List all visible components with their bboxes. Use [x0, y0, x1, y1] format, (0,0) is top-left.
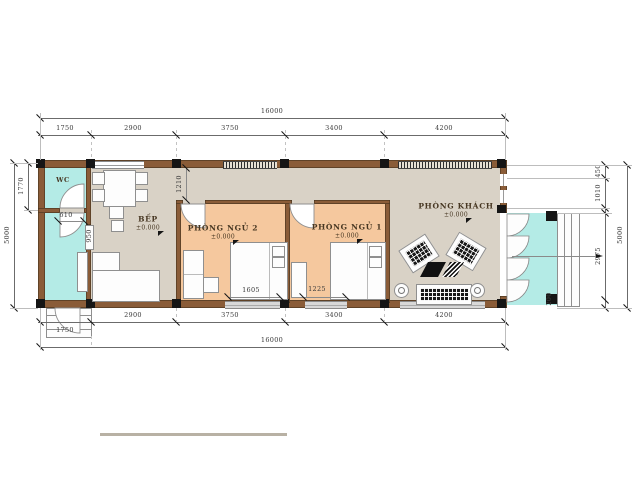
extension-line — [505, 308, 506, 350]
dim-top-seg4: 3400 — [325, 124, 343, 132]
accordion-door-panel — [507, 258, 529, 280]
dim-right-overall: 5000 — [616, 226, 624, 244]
floor-plan-canvas: WC BẾP ±0.000 PHÒNG NGỦ 2 ±0.000 PHÒNG N… — [0, 0, 640, 480]
dimension-line — [303, 297, 346, 298]
dimension-line — [38, 322, 507, 323]
dim-bottom-seg5: 4200 — [435, 311, 453, 319]
grid-line — [176, 130, 177, 160]
wc-door-arc — [60, 184, 84, 208]
dim-top-seg2: 2900 — [124, 124, 142, 132]
extension-line — [10, 163, 38, 164]
bedroom1-elevation: ±0.000 — [335, 233, 359, 240]
sheet-divider-line — [100, 433, 287, 436]
extension-line — [557, 308, 632, 309]
extension-line — [10, 308, 38, 309]
dim-bottom-seg4: 3400 — [325, 311, 343, 319]
dim-bottom-total: 16000 — [261, 336, 283, 344]
dim-left-wc: 1770 — [17, 177, 25, 195]
bedroom2-label: PHÒNG NGỦ 2 — [188, 224, 258, 233]
dim-left-overall: 5000 — [3, 226, 11, 244]
grid-line — [91, 130, 92, 160]
extension-line — [24, 210, 38, 211]
grid-line — [91, 336, 92, 348]
kitchen-elevation: ±0.000 — [136, 225, 160, 232]
dim-right-seg2: 1010 — [594, 184, 602, 202]
dimension-line — [28, 163, 29, 210]
extension-line — [507, 208, 610, 209]
grid-line — [285, 130, 286, 160]
dim-wc-door: 610 — [59, 211, 72, 219]
accordion-door-panel — [507, 236, 529, 258]
bedroom1-level-flag — [357, 239, 363, 244]
dim-right-porch-edge: 200 — [545, 292, 553, 305]
dim-top-seg5: 4200 — [435, 124, 453, 132]
grid-line — [285, 308, 286, 322]
kitchen-level-flag — [158, 231, 164, 236]
dimension-line — [228, 297, 280, 298]
dim-bottom-seg2: 2900 — [124, 311, 142, 319]
living-level-flag — [466, 218, 472, 223]
dim-top-seg3: 3750 — [221, 124, 239, 132]
extension-line — [505, 113, 506, 160]
grid-line — [384, 130, 385, 160]
dim-pass-opening: 950 — [85, 229, 93, 242]
dim-top-seg1: 1750 — [56, 124, 74, 132]
dim-right-seg1: 450 — [594, 164, 602, 177]
bedroom1-label: PHÒNG NGỦ 1 — [312, 223, 382, 232]
dimension-line — [58, 221, 84, 222]
dimension-line — [14, 163, 15, 308]
entry-direction-arrow — [596, 254, 603, 258]
extension-line — [40, 113, 41, 160]
dim-bottom-seg1: 1750 — [56, 326, 74, 334]
dimension-line — [605, 165, 606, 308]
extension-line — [557, 213, 612, 214]
dimension-line — [40, 347, 505, 348]
living-elevation: ±0.000 — [444, 212, 468, 219]
dim-corridor-width: 1210 — [175, 175, 183, 193]
door-swing-arcs — [0, 0, 640, 480]
accordion-door-panel — [507, 280, 529, 302]
dim-top-total: 16000 — [261, 107, 283, 115]
wc-label: WC — [56, 176, 70, 184]
bedroom2-elevation: ±0.000 — [211, 234, 235, 241]
kitchen-label: BẾP — [138, 215, 158, 224]
bedroom2-level-flag — [233, 240, 239, 245]
entry-direction-line — [512, 256, 597, 257]
living-label: PHÒNG KHÁCH — [418, 202, 493, 211]
dim-bedroom2-window: 1605 — [242, 286, 260, 294]
extension-line — [507, 165, 632, 166]
bedroom1-door-arc — [290, 204, 314, 228]
extension-line — [507, 178, 610, 179]
grid-line — [384, 308, 385, 322]
grid-line — [176, 308, 177, 322]
extension-line — [40, 308, 41, 350]
dimension-line — [38, 135, 507, 136]
dimension-line — [40, 118, 505, 119]
dim-bedroom1-window: 1225 — [308, 285, 326, 293]
accordion-door-panel — [507, 214, 529, 236]
dimension-line — [186, 168, 187, 200]
dimension-line — [627, 165, 628, 308]
dim-bottom-seg3: 3750 — [221, 311, 239, 319]
